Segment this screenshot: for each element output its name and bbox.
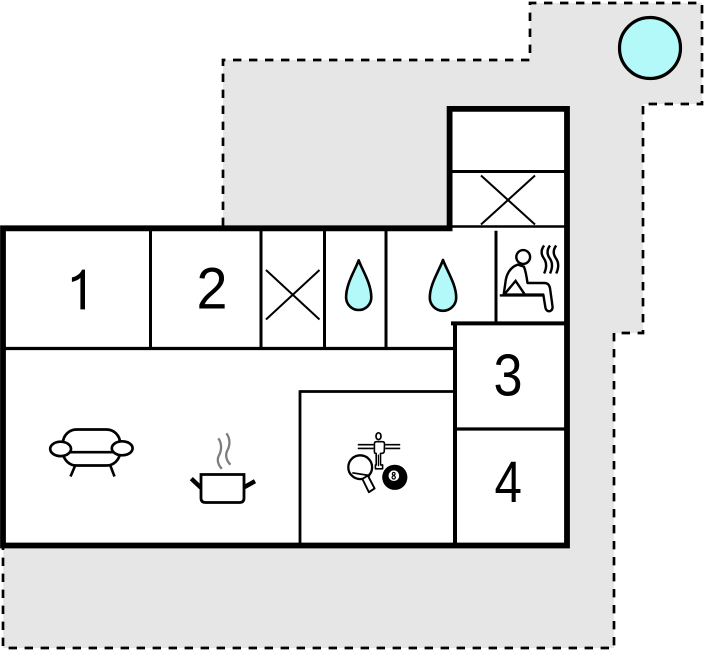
svg-text:3: 3 [493, 341, 522, 408]
svg-text:2: 2 [197, 257, 228, 321]
svg-text:4: 4 [494, 450, 521, 515]
